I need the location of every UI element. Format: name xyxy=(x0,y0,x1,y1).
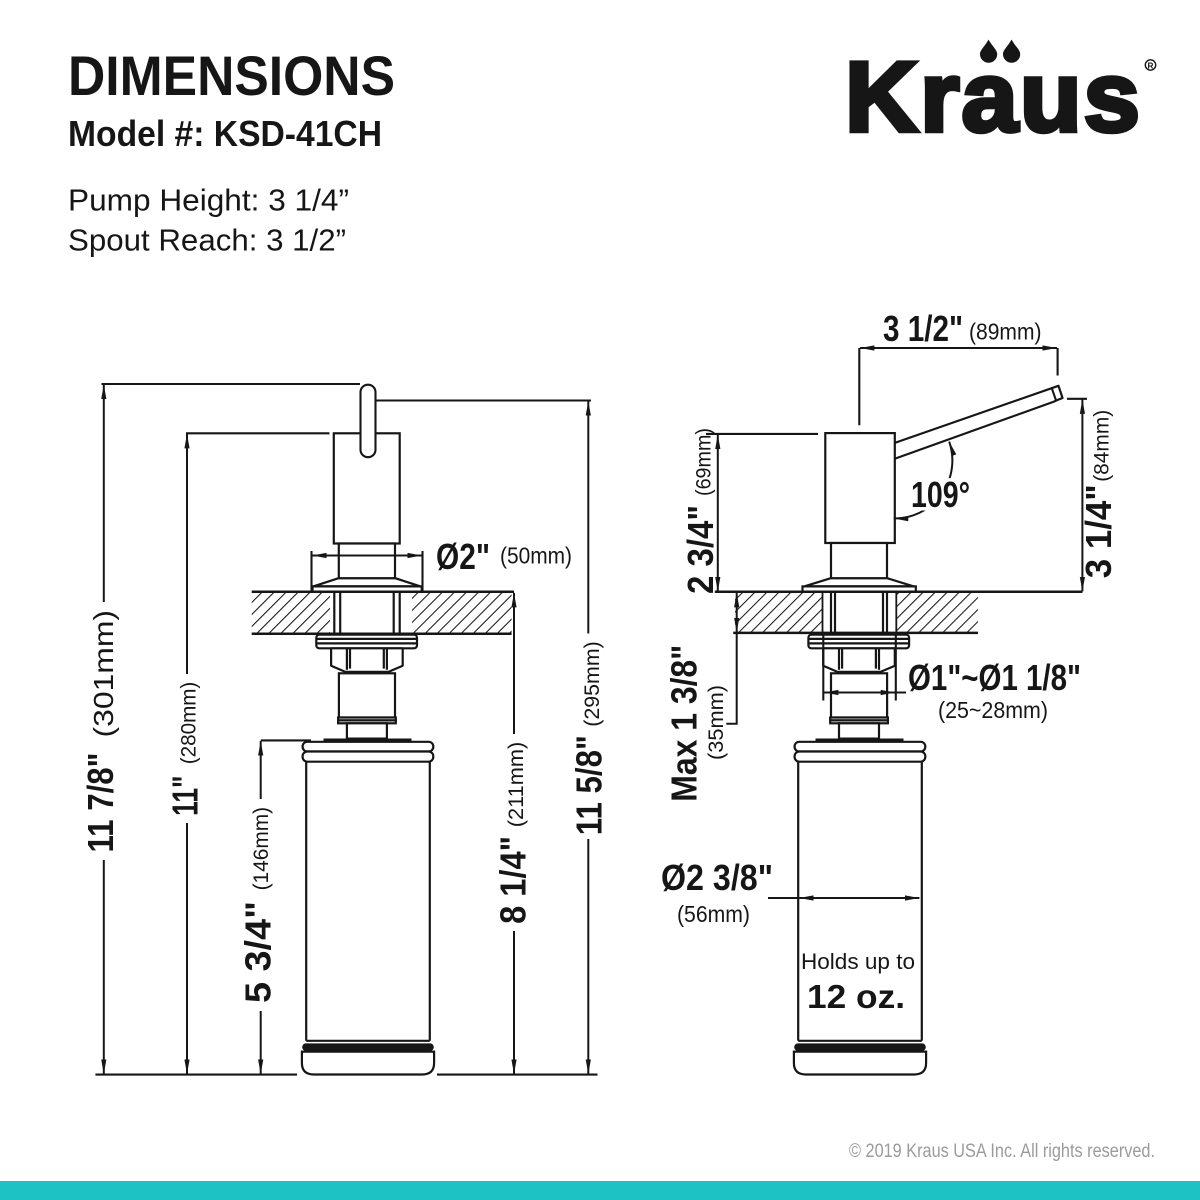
svg-text:Ø2 3/8": Ø2 3/8" xyxy=(661,857,773,898)
svg-text:(146mm): (146mm) xyxy=(249,807,273,891)
svg-text:109°: 109° xyxy=(911,474,970,515)
svg-text:(89mm): (89mm) xyxy=(969,319,1042,345)
svg-text:12 oz.: 12 oz. xyxy=(807,978,905,1015)
svg-text:5 3/4": 5 3/4" xyxy=(238,901,279,1003)
svg-text:(56mm): (56mm) xyxy=(677,901,750,927)
svg-text:R: R xyxy=(1148,61,1154,70)
svg-text:Holds up to: Holds up to xyxy=(801,949,915,974)
svg-text:DIMENSIONS: DIMENSIONS xyxy=(68,44,395,107)
svg-text:(25~28mm): (25~28mm) xyxy=(938,697,1048,723)
svg-text:(69mm): (69mm) xyxy=(692,428,716,496)
svg-text:(280mm): (280mm) xyxy=(177,682,201,765)
svg-text:Pump Height: 3 1/4”: Pump Height: 3 1/4” xyxy=(68,183,349,218)
svg-text:Spout Reach: 3 1/2”: Spout Reach: 3 1/2” xyxy=(68,223,346,258)
svg-text:(84mm): (84mm) xyxy=(1090,410,1114,482)
svg-text:(295mm): (295mm) xyxy=(580,641,604,727)
svg-text:Ø2": Ø2" xyxy=(436,536,490,577)
svg-text:(35mm): (35mm) xyxy=(704,685,728,760)
svg-text:8 1/4": 8 1/4" xyxy=(493,836,534,924)
svg-text:Ø1"~Ø1 1/8": Ø1"~Ø1 1/8" xyxy=(908,657,1081,698)
svg-text:2 3/4": 2 3/4" xyxy=(680,505,721,594)
svg-text:Model #: KSD-41CH: Model #: KSD-41CH xyxy=(68,113,382,154)
svg-text:(50mm): (50mm) xyxy=(500,543,572,569)
svg-text:© 2019 Kraus USA Inc. All righ: © 2019 Kraus USA Inc. All rights reserve… xyxy=(849,1140,1155,1162)
svg-text:11 5/8": 11 5/8" xyxy=(569,735,610,835)
svg-text:(211mm): (211mm) xyxy=(504,742,528,828)
svg-text:3 1/2": 3 1/2" xyxy=(883,308,963,349)
svg-text:11 7/8": 11 7/8" xyxy=(80,753,121,853)
svg-text:11": 11" xyxy=(165,775,206,816)
svg-text:Max 1 3/8": Max 1 3/8" xyxy=(664,645,705,802)
svg-text:(301mm): (301mm) xyxy=(88,610,119,738)
svg-text:3 1/4": 3 1/4" xyxy=(1078,484,1119,578)
